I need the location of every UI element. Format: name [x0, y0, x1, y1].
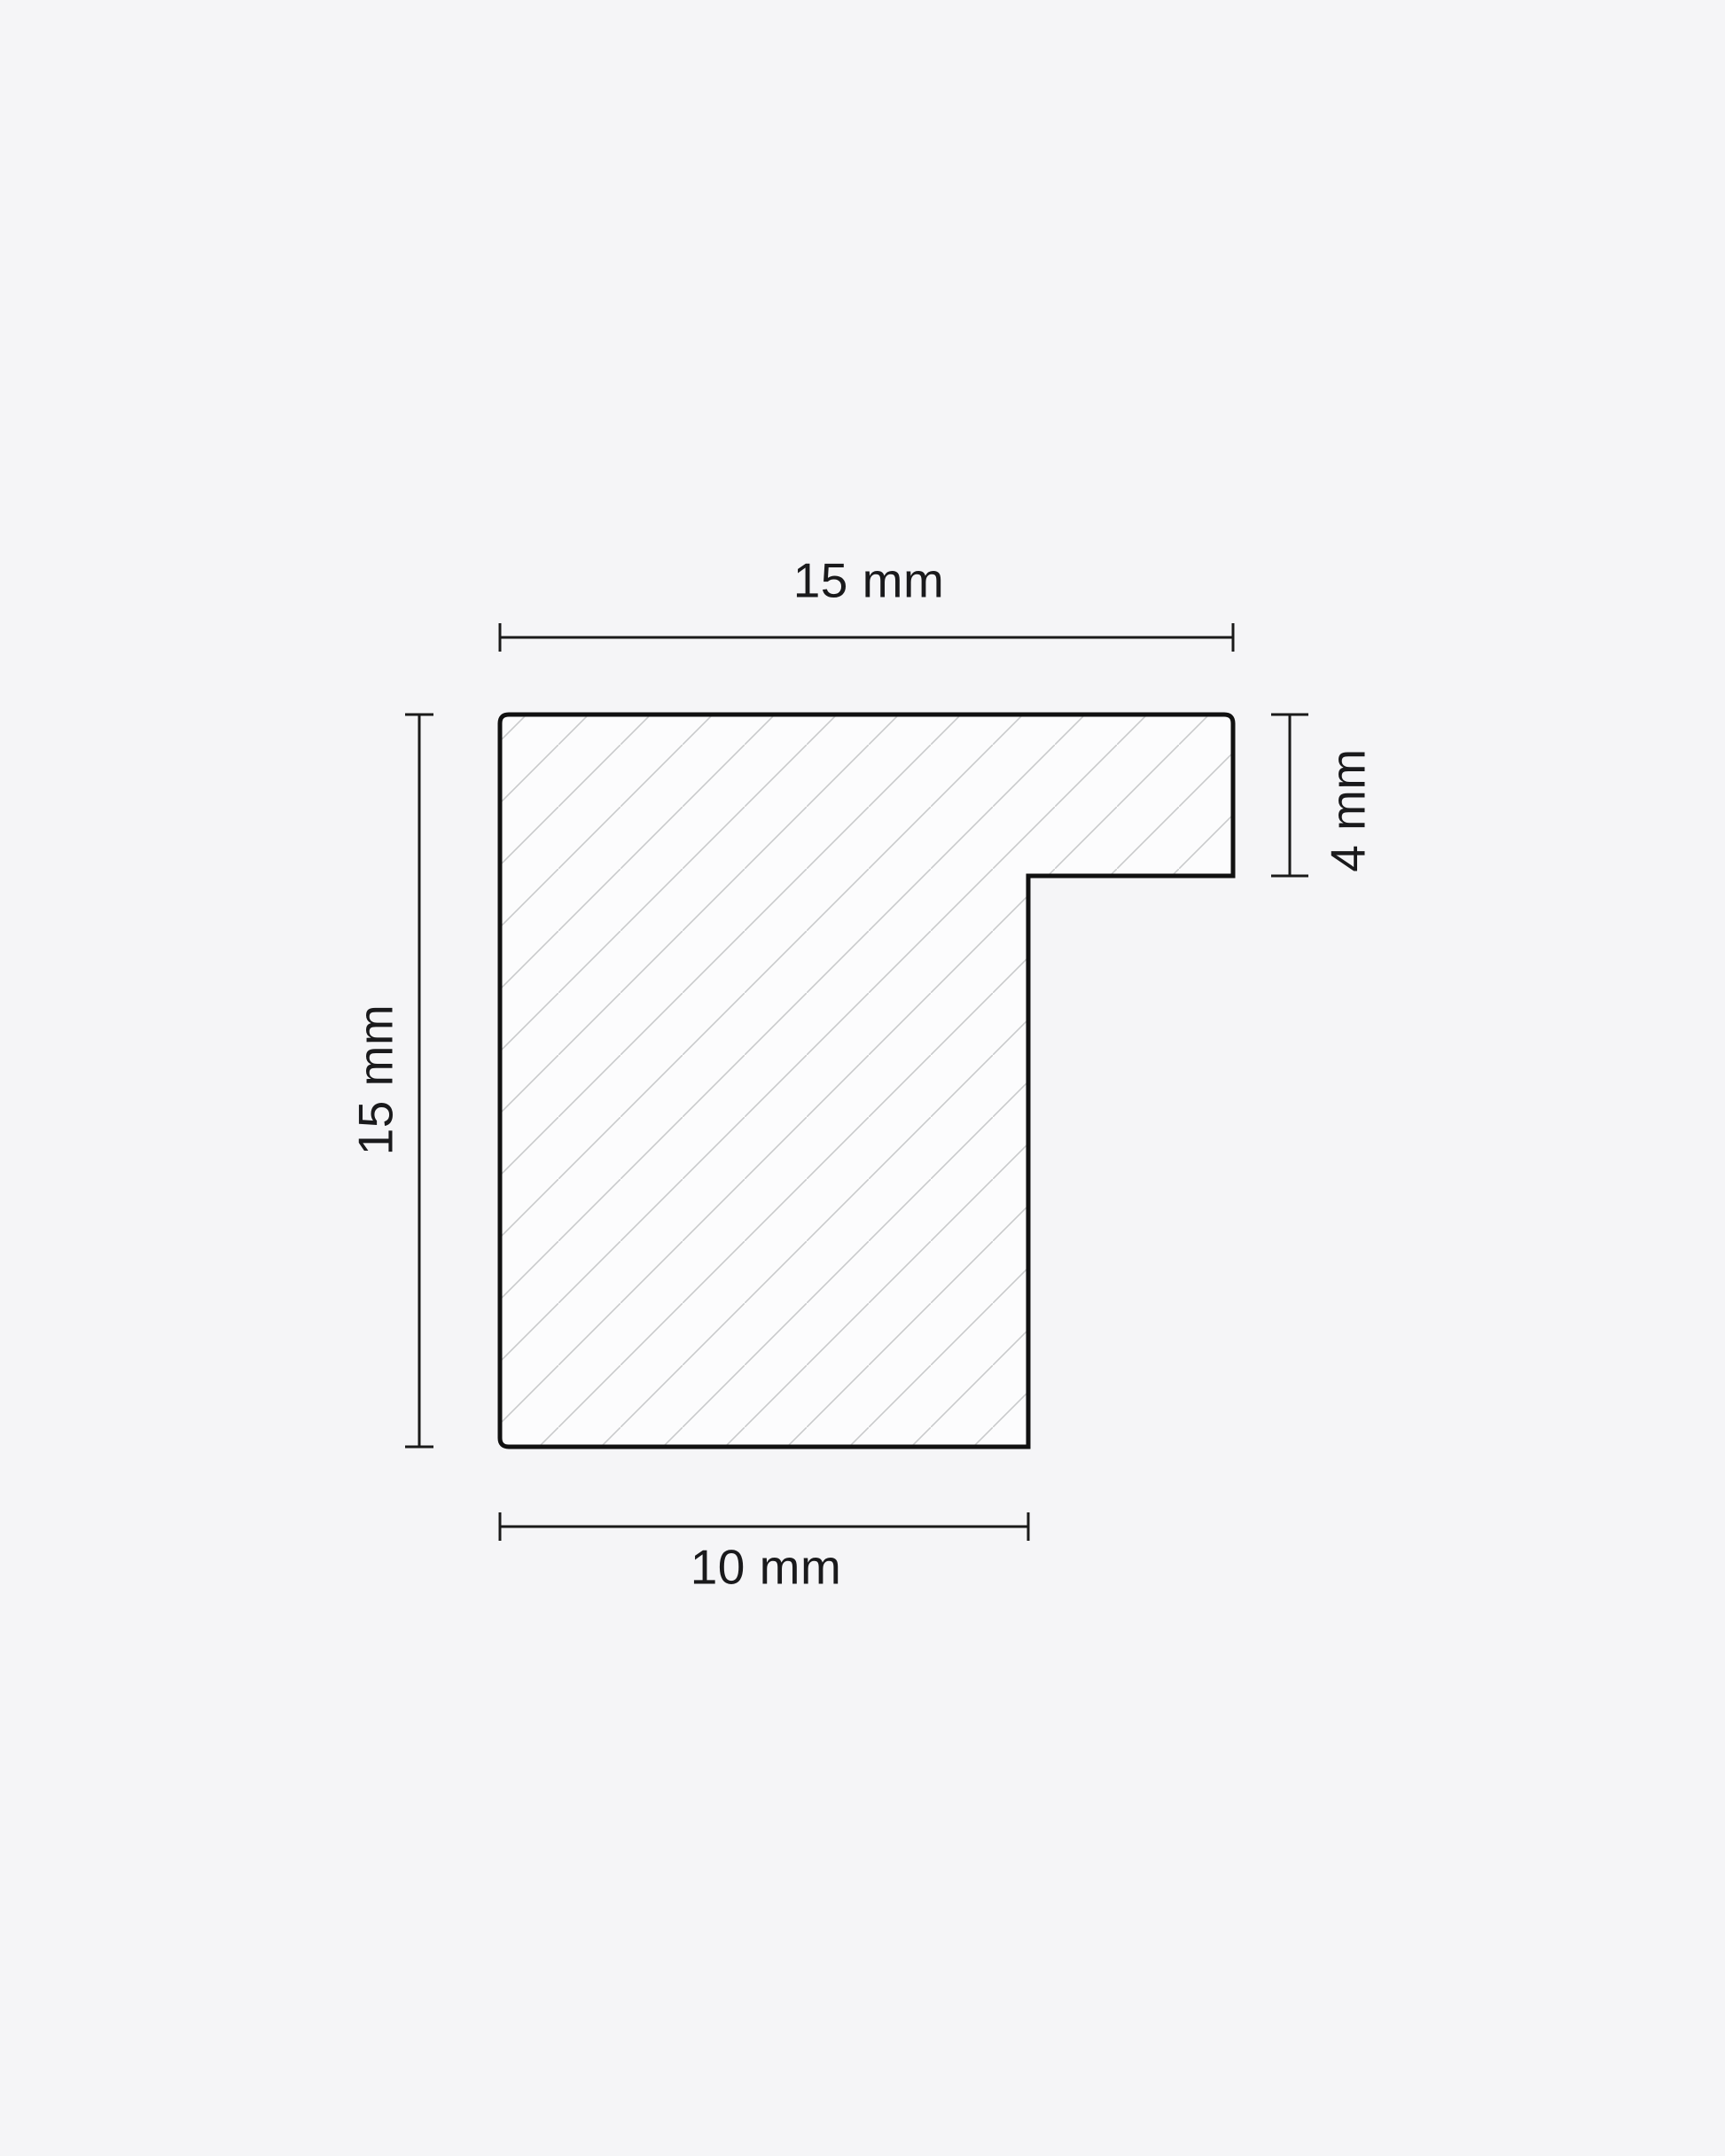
bottom-dimension-label: 10 mm [691, 1543, 842, 1592]
bottom-dimension [500, 1512, 1028, 1541]
left-dimension [405, 715, 433, 1447]
moulding-profile-shape [500, 715, 1233, 1447]
top-dimension-label: 15 mm [793, 557, 945, 605]
diagram-canvas: 15 mm 15 mm 4 mm 10 mm [0, 0, 1725, 2156]
profile-cross-section-drawing [0, 0, 1725, 2156]
right-dimension [1271, 715, 1308, 876]
right-dimension-label: 4 mm [1324, 748, 1373, 872]
left-dimension-label: 15 mm [352, 1004, 401, 1156]
top-dimension [500, 623, 1233, 652]
